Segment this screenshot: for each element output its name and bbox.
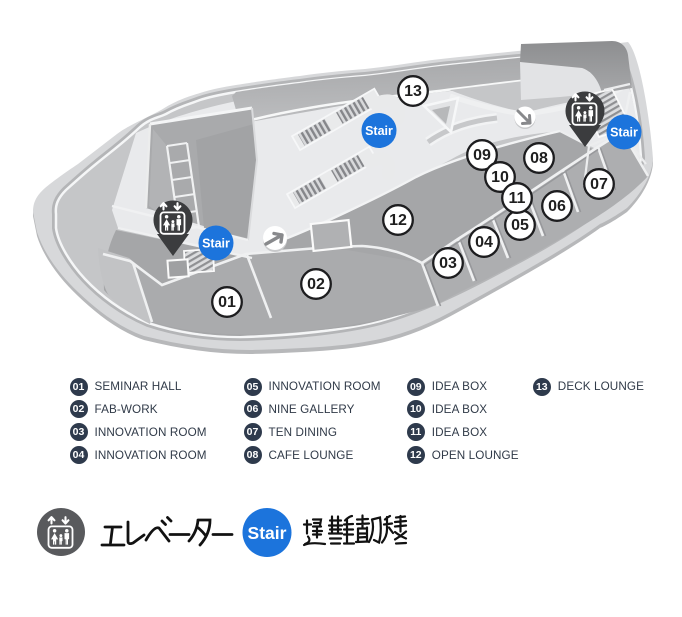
svg-text:Stair: Stair <box>248 523 287 543</box>
